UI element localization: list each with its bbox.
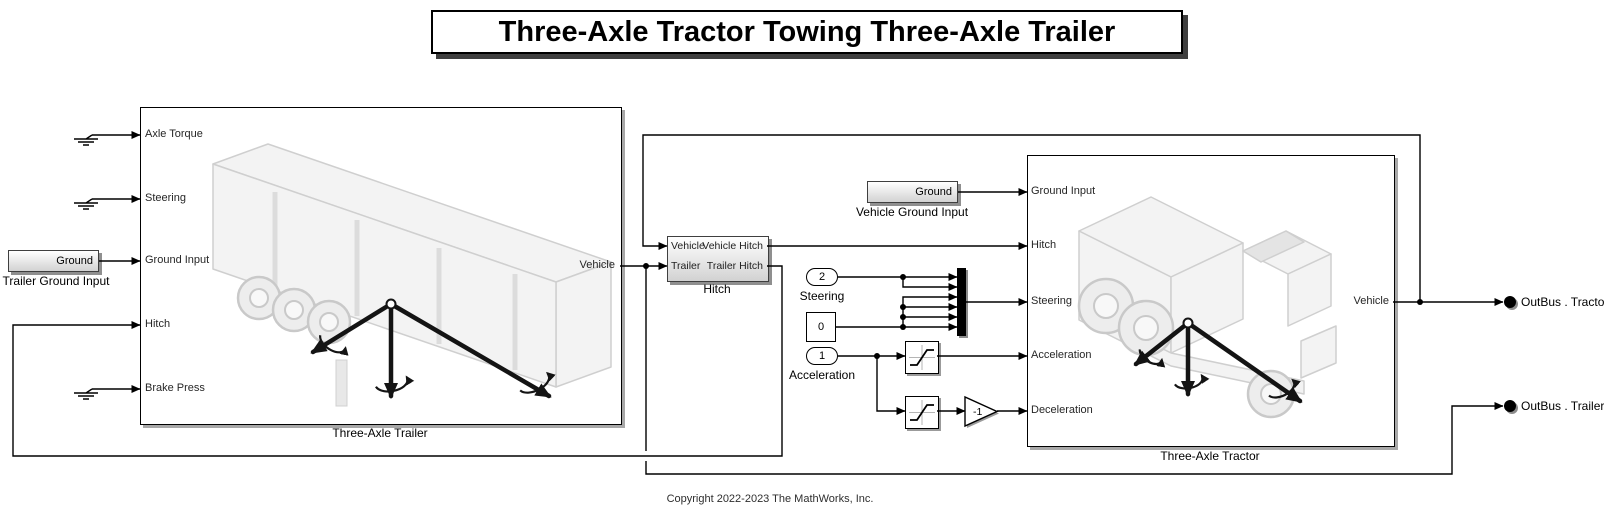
acceleration-constant-caption: Acceleration — [789, 369, 855, 382]
mux-shadow — [959, 270, 968, 338]
trailer-port-vehicle-out: Vehicle — [580, 259, 615, 272]
ground-icon[interactable] — [74, 199, 140, 209]
trailer-port-axle-torque: Axle Torque — [145, 128, 203, 141]
junction-dot — [900, 274, 906, 280]
diagram-title: Three-Axle Tractor Towing Three-Axle Tra… — [431, 10, 1183, 54]
trailer-port-steering: Steering — [145, 192, 186, 205]
acceleration-constant-block[interactable]: 1 — [806, 347, 838, 365]
outbus-trailer-terminator[interactable] — [1504, 400, 1518, 414]
vehicle-ground-text: Ground — [915, 186, 952, 198]
outbus-tractor-label: OutBus . Tractor — [1521, 296, 1604, 309]
trailer-ground-text: Ground — [56, 255, 93, 267]
junction-dot — [1417, 299, 1423, 305]
vehicle-ground-caption: Vehicle Ground Input — [856, 206, 968, 219]
zero-constant-block[interactable]: 0 — [806, 312, 836, 342]
hitch-port-in-vehicle: Vehicle — [671, 240, 705, 252]
three-axle-trailer-block[interactable] — [140, 107, 622, 425]
mux-block[interactable] — [957, 268, 966, 336]
junction-dot — [900, 324, 906, 330]
trailer-ground-block[interactable]: Ground — [8, 250, 99, 272]
junction-dot — [900, 304, 906, 310]
hitch-port-in-trailer: Trailer — [671, 260, 700, 272]
tractor-caption: Three-Axle Tractor — [1160, 450, 1259, 463]
tractor-port-hitch: Hitch — [1031, 239, 1056, 252]
tractor-port-deceleration: Deceleration — [1031, 404, 1093, 417]
tractor-port-steering: Steering — [1031, 295, 1072, 308]
tractor-port-acceleration: Acceleration — [1031, 349, 1092, 362]
saturation-curve-icon — [906, 397, 938, 428]
steering-constant-block[interactable]: 2 — [806, 268, 838, 286]
tractor-axes-triad — [1136, 319, 1300, 402]
vehicle-ground-block[interactable]: Ground — [867, 181, 958, 203]
copyright-text: Copyright 2022-2023 The MathWorks, Inc. — [667, 493, 874, 505]
trailer-illustration — [141, 108, 619, 422]
outbus-trailer-label: OutBus . Trailer — [1521, 400, 1604, 413]
deceleration-saturation-block[interactable] — [905, 396, 939, 429]
tractor-illustration — [1028, 156, 1392, 444]
hitch-caption: Hitch — [703, 283, 730, 296]
ground-icon[interactable] — [74, 389, 140, 399]
junction-dot — [874, 353, 880, 359]
trailer-port-brake-press: Brake Press — [145, 382, 205, 395]
steering-constant-caption: Steering — [800, 290, 845, 303]
gain-block[interactable]: -1 — [965, 397, 999, 428]
trailer-caption: Three-Axle Trailer — [332, 427, 427, 440]
trailer-port-hitch: Hitch — [145, 318, 170, 331]
saturation-curve-icon — [906, 342, 938, 373]
tractor-port-ground-input: Ground Input — [1031, 185, 1095, 198]
ground-icon[interactable] — [74, 135, 140, 145]
trailer-port-ground-input: Ground Input — [145, 254, 209, 267]
trailer-ground-caption: Trailer Ground Input — [3, 275, 110, 288]
acceleration-saturation-block[interactable] — [905, 341, 939, 374]
hitch-port-out-trailer-hitch: Trailer Hitch — [707, 260, 763, 272]
outbus-tractor-terminator[interactable] — [1504, 296, 1518, 310]
hitch-port-out-vehicle-hitch: Vehicle Hitch — [702, 240, 763, 252]
svg-text:-1: -1 — [973, 406, 982, 418]
trailer-axes-triad — [313, 300, 553, 397]
tractor-port-vehicle-out: Vehicle — [1354, 295, 1389, 308]
junction-dot — [900, 314, 906, 320]
simulink-canvas: { "title": { "text": "Three-Axle Tractor… — [0, 0, 1604, 532]
junction-dot — [643, 263, 649, 269]
